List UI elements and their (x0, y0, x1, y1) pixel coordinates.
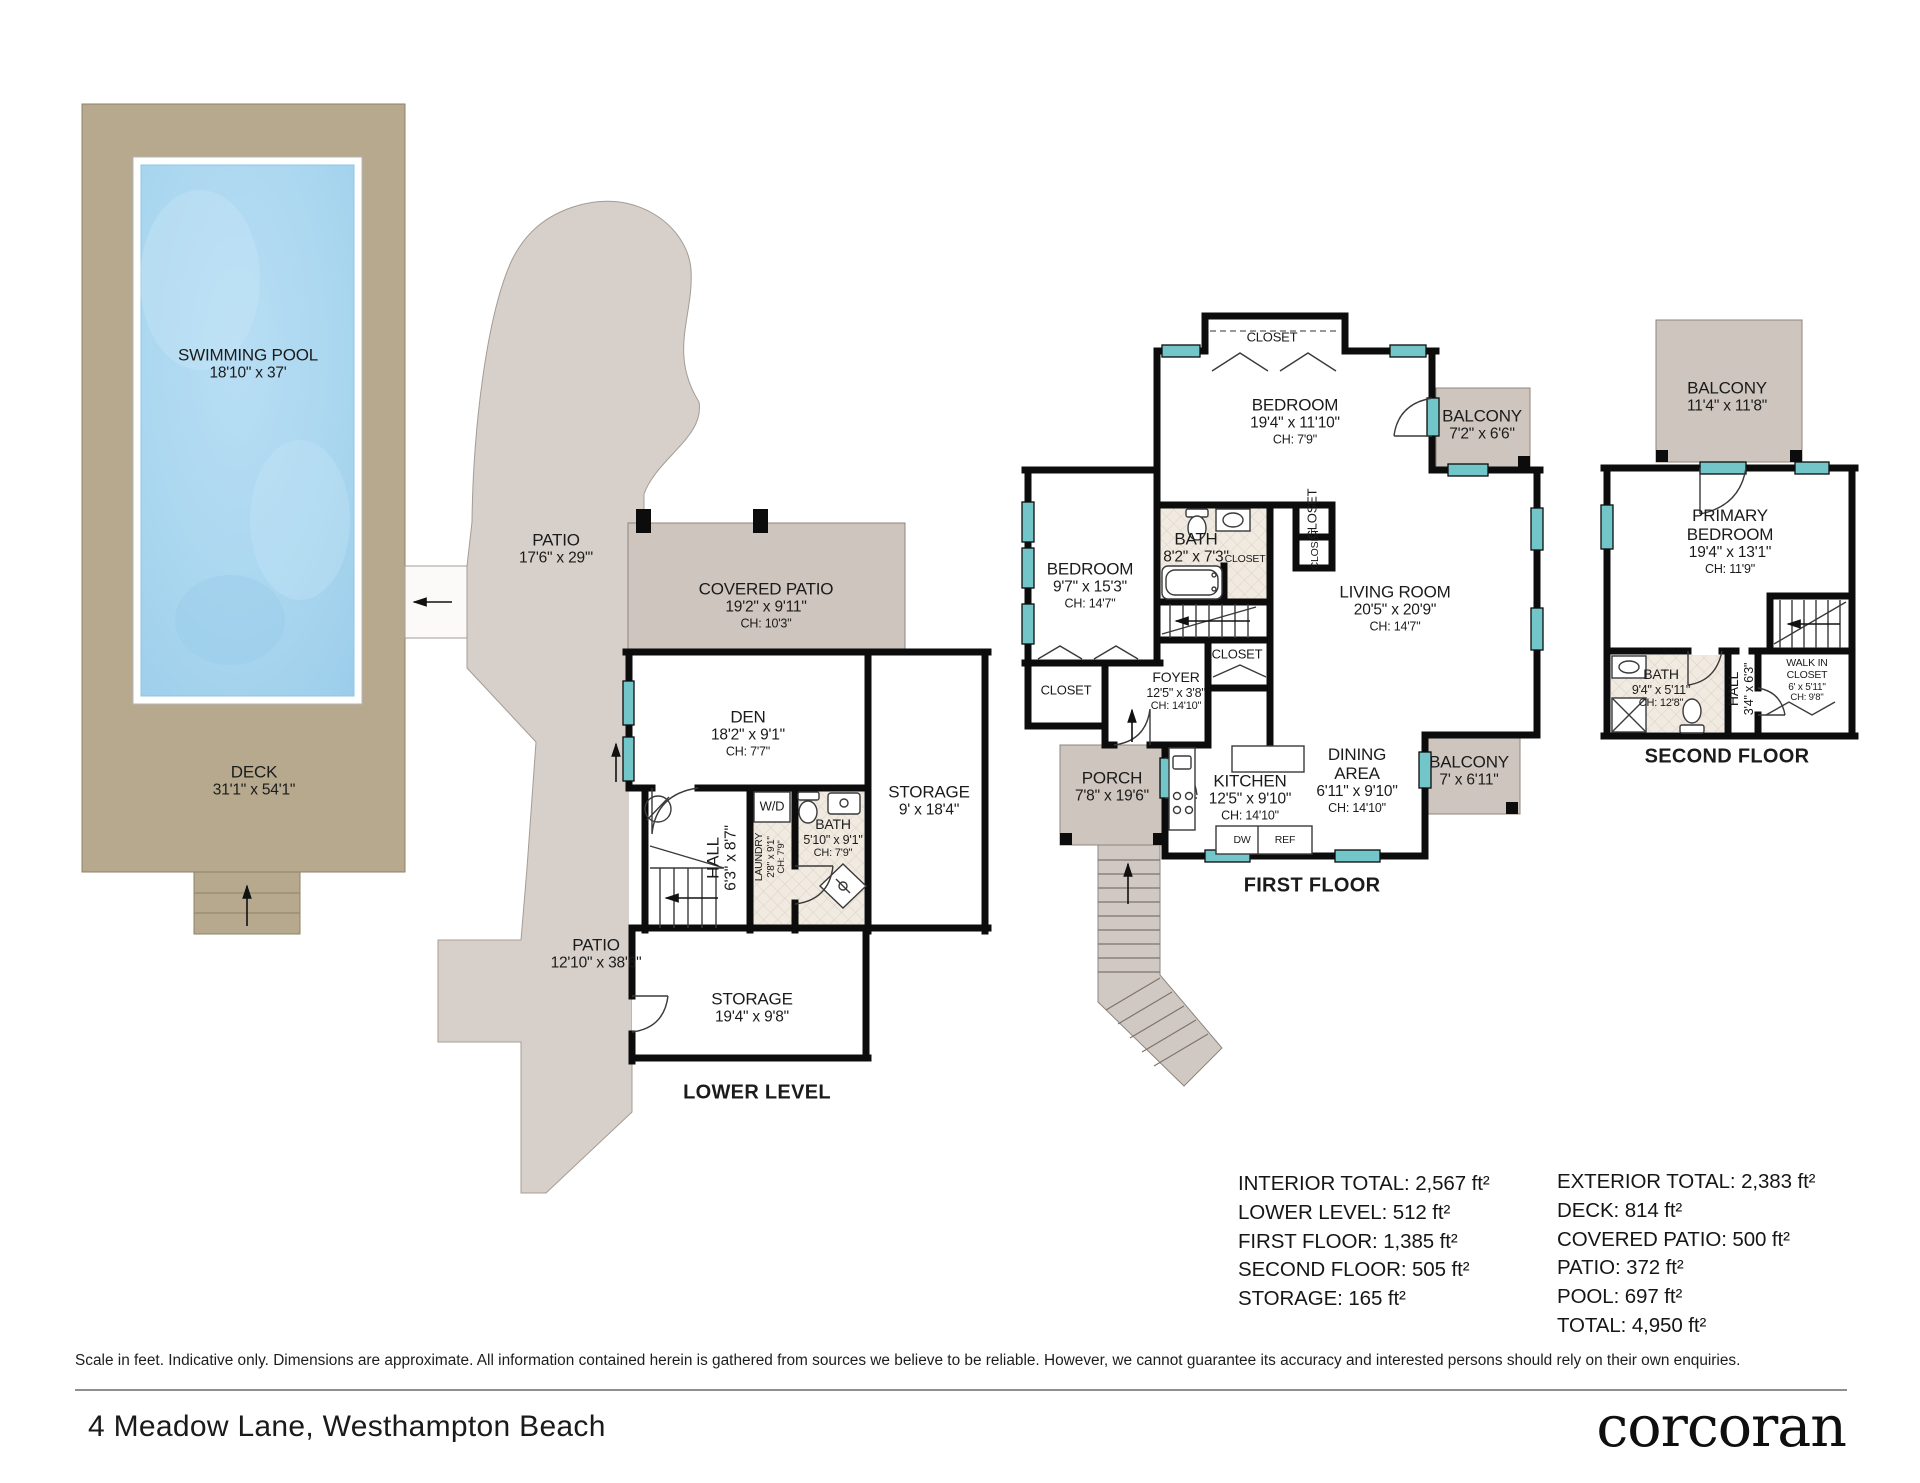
summary-line: DECK: 814 ft² (1557, 1197, 1815, 1226)
summary-line: FIRST FLOOR: 1,385 ft² (1238, 1228, 1490, 1257)
bath-sf-label: BATH9'4" x 5'11"CH: 12'8" (1632, 667, 1690, 709)
balcony-ff-top-label: BALCONY7'2" x 6'6" (1442, 407, 1522, 444)
summary-line: LOWER LEVEL: 512 ft² (1238, 1199, 1490, 1228)
dining-area-label: DININGAREA6'11" x 9'10"CH: 14'10" (1316, 745, 1397, 815)
property-address: 4 Meadow Lane, Westhampton Beach (88, 1410, 606, 1444)
summary-line: EXTERIOR TOTAL: 2,383 ft² (1557, 1168, 1815, 1197)
disclaimer-text: Scale in feet. Indicative only. Dimensio… (75, 1352, 1740, 1370)
footer-divider (75, 1389, 1847, 1391)
first-floor-title: FIRST FLOOR (1244, 875, 1381, 898)
bedroom-left-label: BEDROOM9'7" x 15'3"CH: 14'7" (1047, 560, 1133, 611)
summary-line: POOL: 697 ft² (1557, 1283, 1815, 1312)
second-floor-title: SECOND FLOOR (1645, 746, 1810, 769)
patio-upper-label: PATIO17'6" x 29'" (519, 531, 593, 568)
kitchen-label: KITCHEN12'5" x 9'10"CH: 14'10" (1209, 772, 1291, 823)
closet-bedroom-label: CLOSET (1041, 684, 1092, 699)
exterior-summary: EXTERIOR TOTAL: 2,383 ft²DECK: 814 ft²CO… (1557, 1168, 1815, 1341)
storage-tall-label: STORAGE9' x 18'4" (888, 783, 969, 820)
floorplan-page: SWIMMING POOL18'10" x 37'DECK31'1" x 54'… (0, 0, 1920, 1483)
living-room-label: LIVING ROOM20'5" x 20'9"CH: 14'7" (1339, 583, 1450, 634)
covered-patio-label: COVERED PATIO19'2" x 9'11"CH: 10'3" (699, 580, 834, 631)
interior-summary: INTERIOR TOTAL: 2,567 ft²LOWER LEVEL: 51… (1238, 1170, 1490, 1314)
patio-lower-label: PATIO12'10" x 38'6" (551, 936, 642, 973)
summary-line: STORAGE: 165 ft² (1238, 1285, 1490, 1314)
corcoran-logo: corcoran (1596, 1394, 1846, 1460)
hall-lower-label: HALL6'3" x 8'7" (704, 825, 741, 891)
bath-lower-label: BATH5'10" x 9'1"CH: 7'9" (803, 817, 862, 859)
closet-col2-label: CLOSET (1310, 529, 1322, 570)
foyer-label: FOYER12'5" x 3'8"CH: 14'10" (1146, 670, 1205, 712)
refrigerator-label: REF (1275, 835, 1295, 847)
summary-line: PATIO: 372 ft² (1557, 1254, 1815, 1283)
balcony-sf-label: BALCONY11'4" x 11'8" (1687, 379, 1767, 416)
hall-sf-label: HALL3'4" x 6'3" (1726, 663, 1756, 715)
laundry-label: LAUNDRY2'8" x 9'1"CH: 7'9" (754, 833, 788, 882)
swimming-pool-label: SWIMMING POOL18'10" x 37' (178, 346, 318, 383)
closet-foyer-label: CLOSET (1212, 648, 1263, 663)
summary-line: SECOND FLOOR: 505 ft² (1238, 1256, 1490, 1285)
bedroom-top-label: BEDROOM19'4" x 11'10"CH: 7'9" (1250, 396, 1340, 447)
den-label: DEN18'2" x 9'1"CH: 7'7" (711, 708, 785, 759)
lower-level-title: LOWER LEVEL (683, 1082, 831, 1105)
primary-bedroom-label: PRIMARYBEDROOM19'4" x 13'1"CH: 11'9" (1687, 506, 1773, 576)
deck-label: DECK31'1" x 54'1" (213, 763, 295, 800)
summary-line: TOTAL: 4,950 ft² (1557, 1312, 1815, 1341)
dishwasher-label: DW (1233, 835, 1250, 847)
closet-bath-label: CLOSET (1225, 554, 1266, 566)
storage-wide-label: STORAGE19'4" x 9'8" (711, 990, 792, 1027)
closet-top-label: CLOSET (1247, 331, 1298, 346)
summary-line: COVERED PATIO: 500 ft² (1557, 1226, 1815, 1255)
washer-dryer-label: W/D (760, 800, 785, 815)
summary-line: INTERIOR TOTAL: 2,567 ft² (1238, 1170, 1490, 1199)
walk-in-closet-label: WALK INCLOSET6' x 5'11"CH: 9'8" (1786, 658, 1827, 704)
porch-label: PORCH7'8" x 19'6" (1075, 769, 1149, 806)
balcony-ff-low-label: BALCONY7' x 6'11" (1429, 753, 1509, 790)
bath-ff-label: BATH8'2" x 7'3" (1163, 530, 1229, 567)
